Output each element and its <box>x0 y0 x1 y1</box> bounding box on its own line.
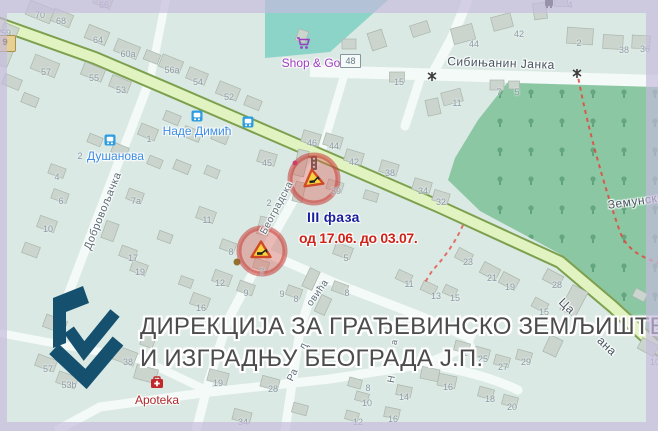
building <box>493 354 510 368</box>
building <box>515 349 532 363</box>
building <box>101 220 119 241</box>
agency-logo-icon <box>44 275 136 393</box>
building <box>441 88 464 106</box>
building <box>93 0 114 9</box>
building <box>454 247 473 264</box>
building <box>384 407 401 420</box>
building <box>566 27 593 45</box>
building <box>490 80 504 90</box>
building <box>22 242 41 258</box>
building <box>395 269 413 284</box>
building <box>119 245 138 261</box>
building <box>479 261 501 280</box>
building <box>437 373 457 388</box>
bus-stop-icon <box>192 111 203 122</box>
roadworks-marker <box>239 228 285 274</box>
bus-stop-icon <box>105 135 116 146</box>
building <box>36 215 57 232</box>
building <box>30 54 60 78</box>
tree-icon <box>528 292 533 301</box>
building <box>195 206 216 223</box>
building <box>126 188 145 204</box>
building <box>425 98 441 116</box>
commercial-zone <box>265 0 388 58</box>
building <box>603 34 624 49</box>
building <box>367 29 387 51</box>
building <box>632 35 651 49</box>
tram-stop-icon <box>545 0 553 8</box>
building <box>178 276 193 289</box>
building <box>355 391 370 403</box>
caption-line1: ДИРЕКЦИЈА ЗА ГРАЂЕВИНСКО ЗЕМЉИШТЕ <box>140 313 658 341</box>
boxed-house-number: 48 <box>340 54 361 68</box>
street-road <box>310 71 658 81</box>
building <box>189 292 210 309</box>
building <box>257 150 278 167</box>
building <box>157 230 173 243</box>
building <box>363 190 379 203</box>
building <box>173 159 192 174</box>
date-range-label: од 17.06. до 03.07. <box>299 230 418 246</box>
building <box>477 386 494 400</box>
caption-line2: И ИЗГРАДЊУ БЕОГРАДА Ј.П. <box>140 345 483 373</box>
building <box>379 160 400 177</box>
tree-icon <box>497 292 502 301</box>
building <box>555 0 568 7</box>
building <box>158 54 183 74</box>
building <box>51 189 69 204</box>
building <box>410 21 431 38</box>
tree-icon <box>528 263 533 272</box>
bus-stop-icon <box>243 117 254 128</box>
building <box>342 39 356 49</box>
building <box>137 123 158 141</box>
building <box>501 394 518 408</box>
roadworks-marker <box>290 155 338 203</box>
building <box>442 284 458 298</box>
building <box>244 95 263 110</box>
building <box>291 402 308 416</box>
building <box>182 126 203 143</box>
building <box>2 74 23 91</box>
building <box>219 239 237 254</box>
building <box>48 164 66 179</box>
building <box>390 72 405 82</box>
building <box>396 385 413 398</box>
street-road <box>405 79 420 126</box>
park-area <box>448 82 658 350</box>
building <box>130 260 149 276</box>
building <box>285 285 303 300</box>
building <box>232 408 252 423</box>
building <box>211 129 230 144</box>
building <box>21 92 40 107</box>
building <box>531 297 549 313</box>
building <box>84 24 110 45</box>
building <box>147 155 163 169</box>
building <box>345 410 360 422</box>
route-number-chip: 9 <box>0 35 16 52</box>
building <box>113 38 140 59</box>
building <box>87 133 103 147</box>
building <box>211 269 232 286</box>
building <box>420 280 438 295</box>
map-screenshot: 597068666460a57555356a54521462101117197a… <box>0 0 658 431</box>
building <box>185 67 208 86</box>
tree-icon <box>559 292 564 301</box>
building <box>204 165 220 179</box>
building <box>509 81 520 89</box>
building <box>163 110 182 125</box>
building <box>491 13 514 32</box>
building <box>215 81 240 101</box>
building <box>498 271 520 290</box>
building <box>50 8 73 28</box>
phase-label: III фаза <box>307 209 360 225</box>
